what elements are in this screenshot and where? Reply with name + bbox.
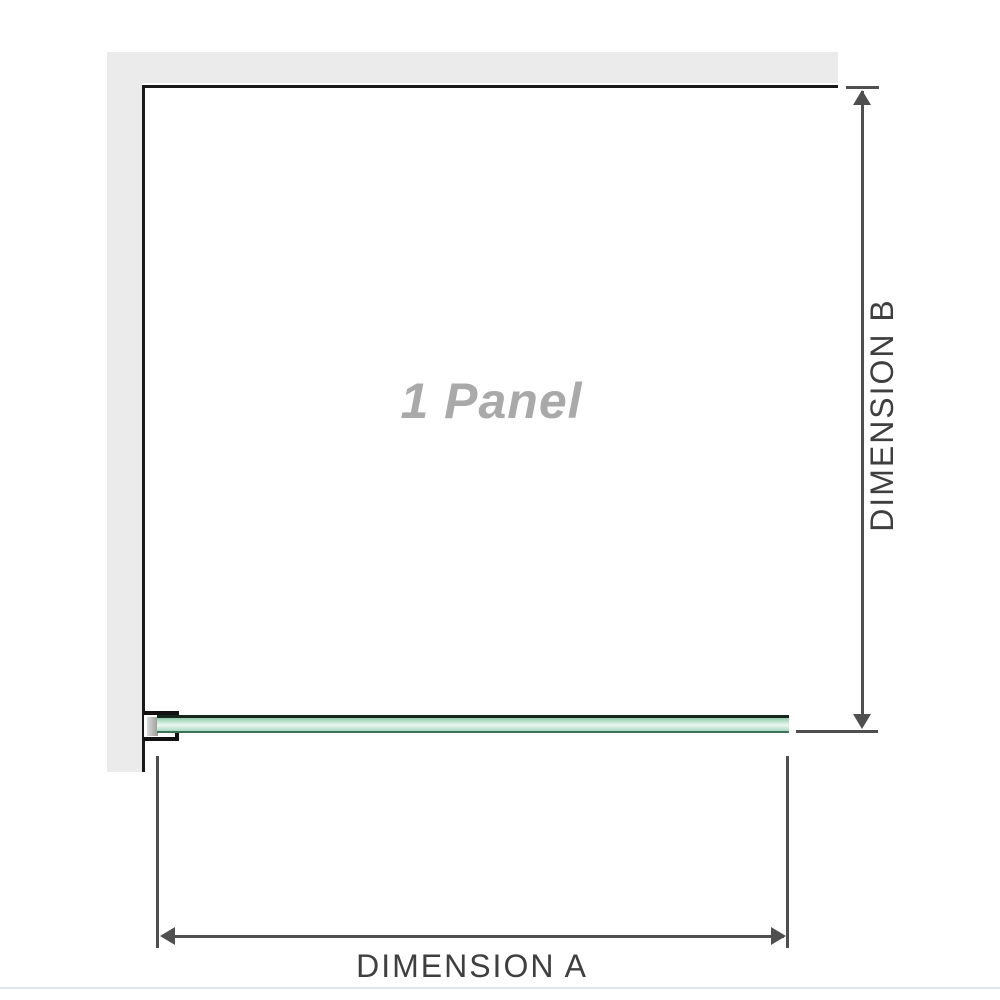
dimension-a-line bbox=[163, 935, 784, 938]
arrow-left-icon bbox=[160, 927, 175, 945]
baseline-divider bbox=[0, 987, 1000, 989]
dimension-b-bottom-tick bbox=[796, 730, 878, 733]
dimension-a-label-container: DIMENSION A bbox=[272, 946, 672, 986]
dimension-a-label: DIMENSION A bbox=[356, 948, 588, 985]
arrow-right-icon bbox=[771, 927, 786, 945]
dimension-a-left-extension-line bbox=[156, 756, 159, 948]
arrow-up-icon bbox=[853, 90, 871, 105]
panel-count-label: 1 Panel bbox=[400, 372, 582, 430]
wall-vertical-strip bbox=[107, 52, 142, 772]
glass-panel-bar bbox=[157, 715, 789, 733]
dimension-b-label-container: DIMENSION B bbox=[862, 265, 902, 565]
dimension-b-top-tick bbox=[846, 86, 879, 89]
dimension-a-right-extension-line bbox=[786, 756, 789, 948]
panel-label-container: 1 Panel bbox=[145, 87, 838, 715]
arrow-down-icon bbox=[853, 714, 871, 729]
dimension-b-label: DIMENSION B bbox=[864, 298, 901, 532]
wall-horizontal-strip bbox=[107, 52, 838, 83]
panel-dimension-diagram: 1 Panel DIMENSION B DIMENSION A bbox=[0, 0, 1000, 1000]
